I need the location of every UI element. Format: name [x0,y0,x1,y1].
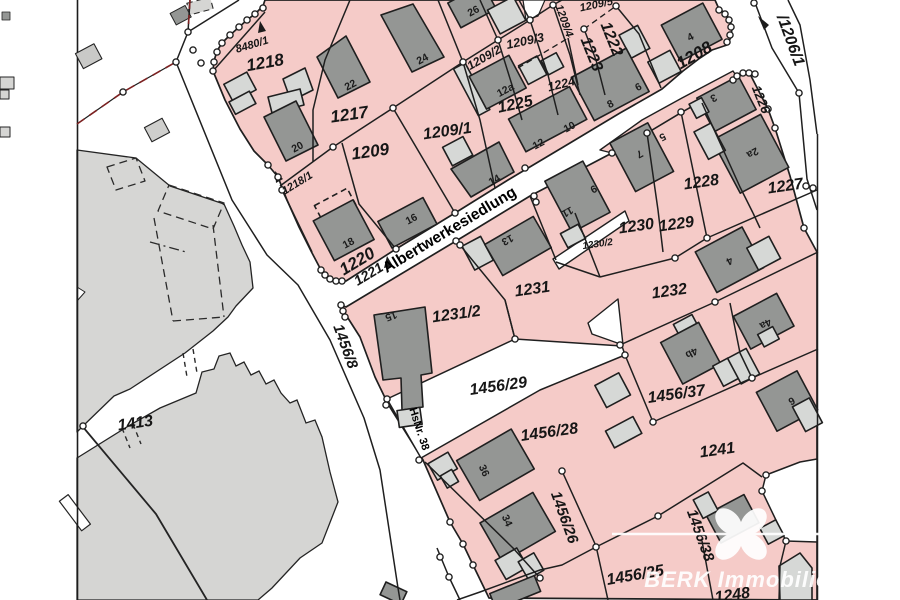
svg-text:BERK Immobilien: BERK Immobilien [644,567,844,592]
